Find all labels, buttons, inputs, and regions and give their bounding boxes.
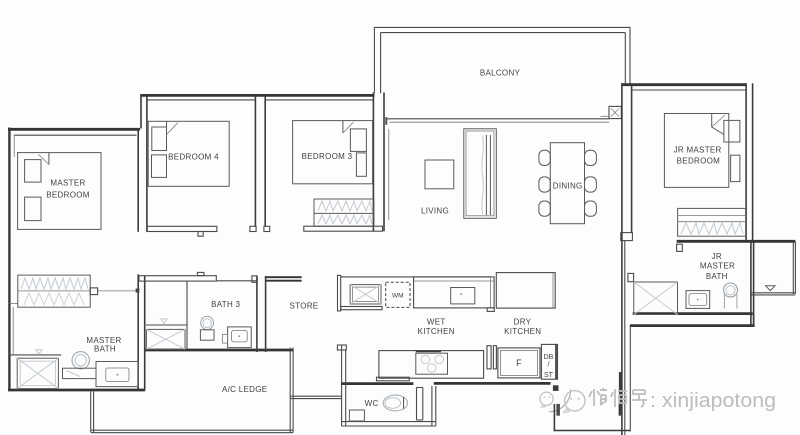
svg-text:DB: DB [544, 354, 554, 361]
svg-text:KITCHEN: KITCHEN [504, 327, 541, 336]
svg-text:KITCHEN: KITCHEN [418, 327, 455, 336]
svg-text:DINING: DINING [553, 182, 583, 191]
svg-text:BEDROOM: BEDROOM [677, 156, 720, 165]
svg-text:F: F [516, 358, 522, 368]
svg-text:BEDROOM 4: BEDROOM 4 [168, 152, 219, 161]
svg-text:WM: WM [392, 292, 404, 299]
svg-text:BALCONY: BALCONY [480, 68, 521, 77]
svg-text:BATH: BATH [94, 345, 116, 354]
svg-text:LIVING: LIVING [421, 206, 449, 215]
svg-text:BEDROOM 3: BEDROOM 3 [302, 152, 353, 161]
svg-text:DRY: DRY [514, 317, 532, 326]
svg-text:JR MASTER: JR MASTER [674, 145, 722, 154]
svg-text:: xinjiapotong: : xinjiapotong [650, 389, 776, 412]
svg-text:WET: WET [427, 317, 446, 326]
svg-text:ST: ST [544, 372, 554, 379]
svg-text:MASTER: MASTER [50, 179, 85, 188]
svg-text:MASTER: MASTER [700, 262, 735, 271]
svg-text:BEDROOM: BEDROOM [46, 190, 89, 199]
svg-text:BATH: BATH [706, 272, 728, 281]
svg-text:STORE: STORE [290, 301, 319, 310]
svg-text:JR: JR [712, 252, 722, 261]
svg-text:BATH 3: BATH 3 [211, 300, 240, 309]
svg-text:/: / [548, 361, 550, 368]
svg-text:A/C LEDGE: A/C LEDGE [222, 385, 267, 394]
svg-text:WC: WC [365, 399, 379, 408]
